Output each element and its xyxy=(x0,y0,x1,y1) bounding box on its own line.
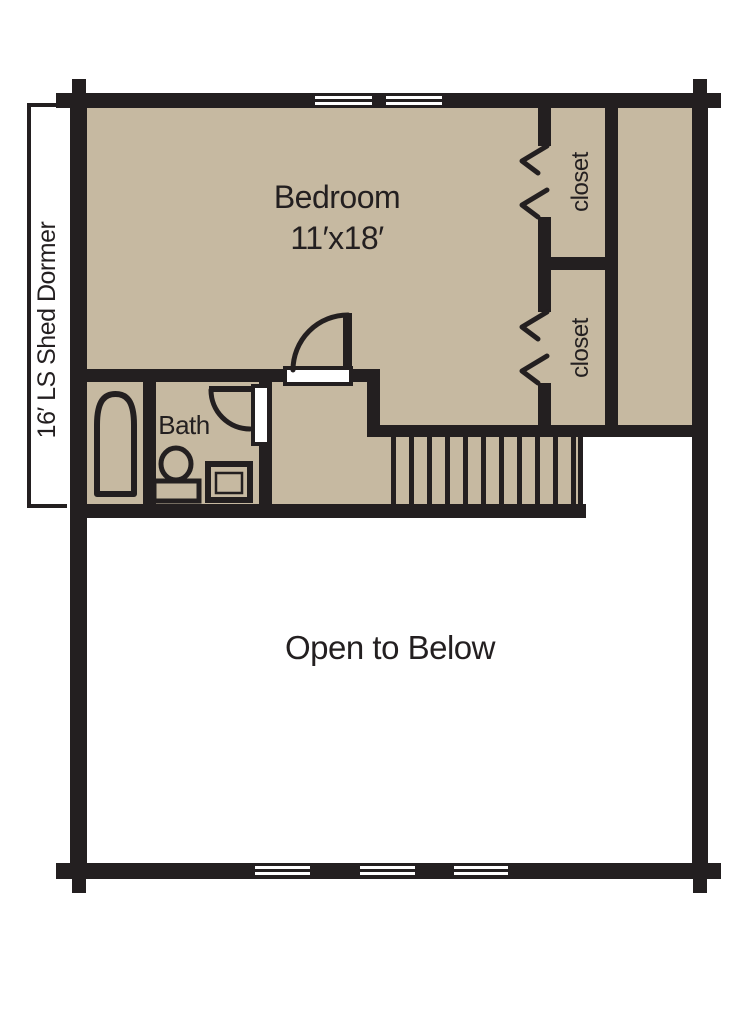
stairs xyxy=(378,437,583,504)
log-stub-bottom-left xyxy=(72,879,86,893)
wall-right xyxy=(692,93,708,879)
window-pane-line xyxy=(386,99,442,102)
log-stub-bottom-right xyxy=(693,879,707,893)
dimension-bracket-line xyxy=(27,103,31,508)
window-top-1 xyxy=(313,94,374,107)
floor-plan: 16′ LS Shed Dormer Bedroom 11′x18′ Bath … xyxy=(0,0,747,1024)
wall-closet-west-bottom xyxy=(538,383,551,425)
wall-mid-horizontal xyxy=(367,425,692,437)
window-pane-line xyxy=(255,869,310,872)
wall-left xyxy=(70,93,87,879)
closet-bottom-label: closet xyxy=(568,288,596,408)
dimension-bracket-tick-bottom xyxy=(27,504,67,508)
bedroom-label: Bedroom xyxy=(237,180,437,215)
dormer-dimension-label: 16′ LS Shed Dormer xyxy=(34,180,62,480)
bath-door-leaf xyxy=(209,386,251,392)
closet-top-label: closet xyxy=(568,122,596,242)
log-stub-top-right xyxy=(693,79,707,93)
log-stub-top-left xyxy=(72,79,86,93)
bath-door-slab xyxy=(251,384,271,446)
window-top-2 xyxy=(384,94,444,107)
window-pane-line xyxy=(360,869,415,872)
wall-tub-nook xyxy=(143,378,156,504)
window-bottom-2 xyxy=(358,864,417,877)
bedroom-door-threshold xyxy=(283,366,353,386)
wall-closet-west-top xyxy=(538,108,551,146)
window-bottom-3 xyxy=(452,864,510,877)
window-pane-line xyxy=(454,869,508,872)
bath-label: Bath xyxy=(150,411,218,440)
bedroom-size-label: 11′x18′ xyxy=(237,221,437,256)
open-to-below-label: Open to Below xyxy=(240,630,540,666)
wall-bedroom-south-west xyxy=(87,369,284,382)
window-bottom-1 xyxy=(253,864,312,877)
window-pane-line xyxy=(315,99,372,102)
wall-closet-east xyxy=(605,108,618,425)
dimension-bracket-tick-top xyxy=(27,103,67,107)
wall-lower-horizontal xyxy=(70,504,586,518)
bedroom-door-leaf xyxy=(343,313,352,368)
